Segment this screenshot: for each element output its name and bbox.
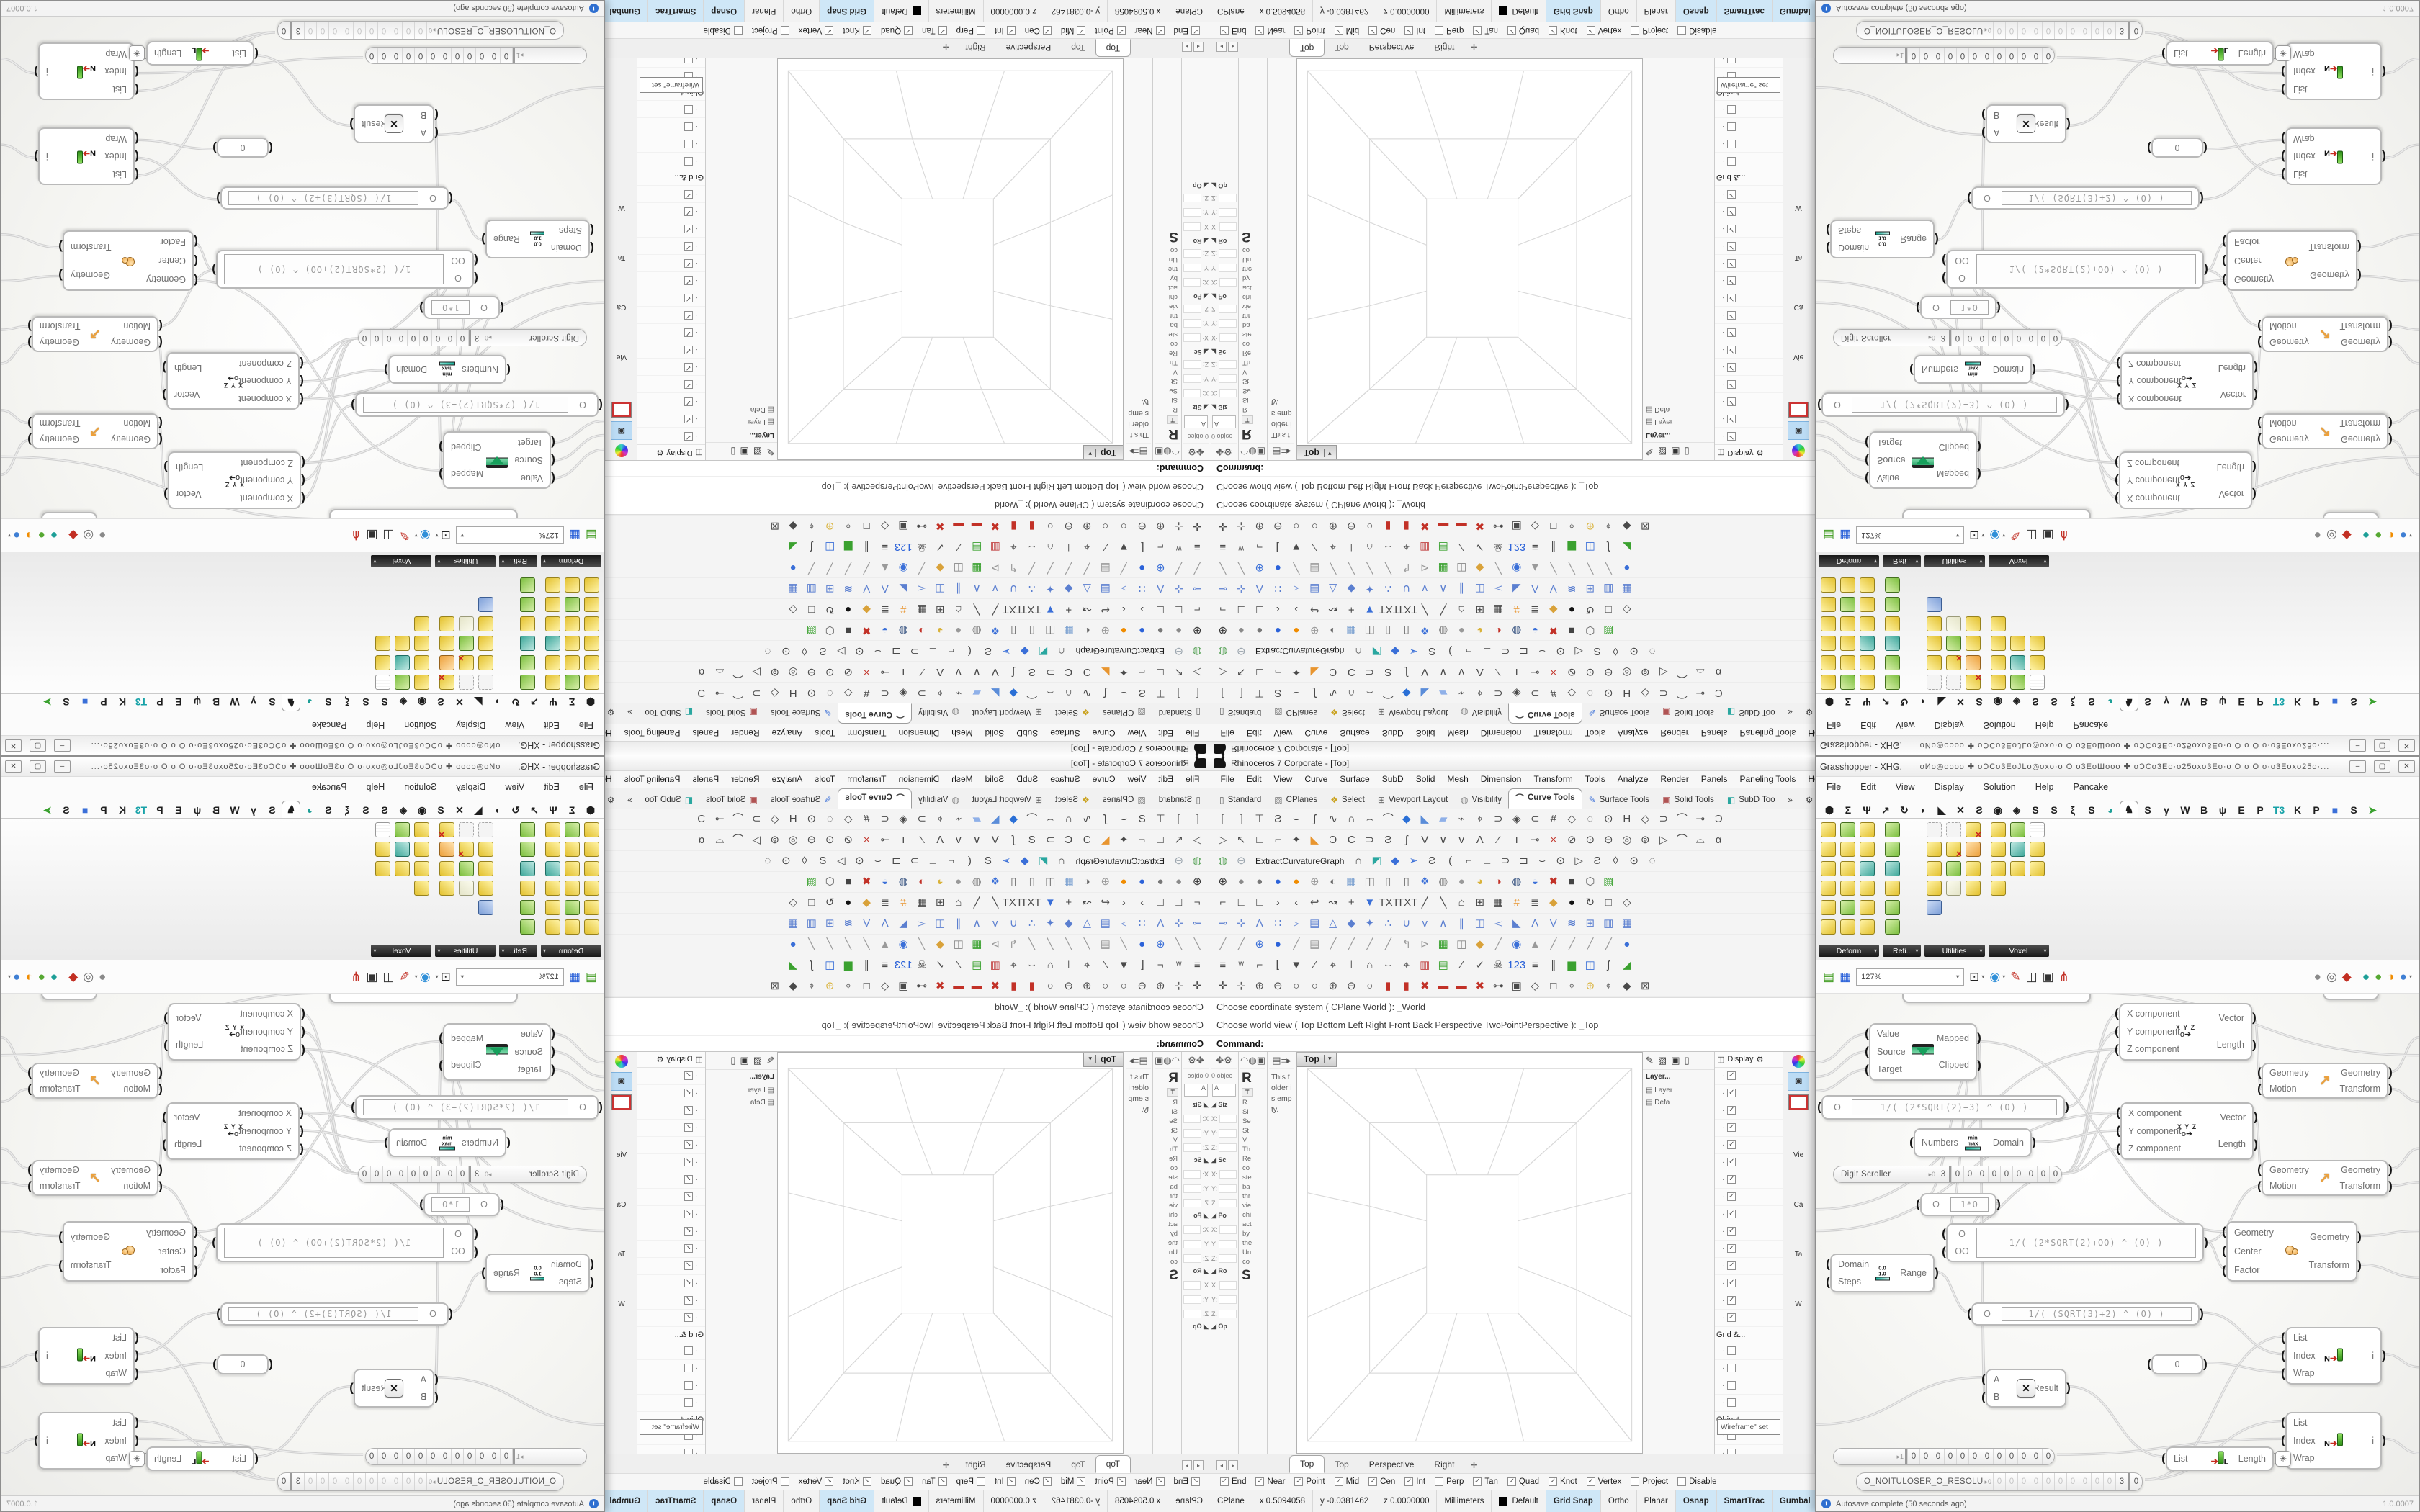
osnap-mid[interactable]: ✓Mid xyxy=(1061,1477,1086,1486)
category-tab-14[interactable]: S xyxy=(2082,694,2101,707)
toolbar-icon[interactable]: Ƨ xyxy=(1023,667,1041,678)
slider-digit[interactable]: 0 xyxy=(415,1473,427,1490)
tab-select[interactable]: ❖Select xyxy=(1324,792,1371,809)
layer-color-swatch[interactable] xyxy=(913,6,921,15)
toolbar-icon[interactable]: ⊂ xyxy=(876,688,895,698)
tab-surface-tools[interactable]: ✎Surface Tools xyxy=(1582,792,1657,809)
expression-4-component[interactable]: O1/( (SQRT(3)+2) ^ (O) )() xyxy=(220,1302,449,1326)
osnap-perp[interactable]: Perp xyxy=(1435,1477,1464,1486)
toolbar-icon[interactable]: ⊙ xyxy=(1600,814,1618,824)
slider-digit[interactable]: 0 xyxy=(1963,1166,1976,1182)
toolbar-icon[interactable]: ⊙ xyxy=(851,855,869,866)
osnap-point[interactable]: ✓Point xyxy=(1294,26,1325,35)
toolbar-icon[interactable]: ∟ xyxy=(1478,855,1497,866)
port-grip[interactable]: ( xyxy=(550,473,557,485)
toolbar-icon[interactable]: ▦ xyxy=(1059,625,1078,636)
slider-digit[interactable]: 0 xyxy=(1907,1449,1919,1464)
display-mode-icon[interactable]: ● xyxy=(13,529,20,541)
toolbar-icon[interactable]: ⊸ xyxy=(1691,814,1710,824)
port-grip[interactable]: ( xyxy=(2256,434,2263,446)
checkbox-checked[interactable]: ✓ xyxy=(1007,26,1016,35)
toolbar-icon[interactable]: ∟ xyxy=(924,855,943,866)
sketch-icon[interactable]: ✎ xyxy=(400,529,410,541)
toolbar-icon[interactable]: TXT xyxy=(1023,897,1041,908)
scale-component[interactable]: GeometryCenterFactorGeometryTransform(((… xyxy=(2226,230,2357,291)
port-grip[interactable]: ) xyxy=(2387,1163,2394,1175)
axis-input[interactable] xyxy=(1183,194,1201,202)
toolbar-icon[interactable]: Ɔ xyxy=(1710,814,1729,824)
port-grip[interactable]: ) xyxy=(418,302,425,314)
toolbar-icon[interactable]: ∷ xyxy=(1269,918,1288,929)
category-tab-27[interactable]: ■ xyxy=(2326,805,2344,818)
toolbar-icon[interactable]: ⊖ xyxy=(1343,981,1361,991)
toolbar-icon[interactable]: ◆ xyxy=(1471,562,1489,573)
slider-digit[interactable]: 0 xyxy=(1993,1473,2005,1490)
checkbox-checked[interactable]: ✓ xyxy=(684,259,693,268)
toolbar-icon[interactable]: ╱ xyxy=(1544,562,1563,573)
category-tab-2[interactable]: Ψ xyxy=(544,694,563,707)
section-sc[interactable]: ◢ Sc xyxy=(1211,1156,1237,1164)
toolbar-icon[interactable]: ◌ xyxy=(1643,855,1662,866)
toolbar-icon[interactable]: ▤ xyxy=(1096,918,1115,929)
component-icon[interactable] xyxy=(565,597,580,612)
component-icon[interactable] xyxy=(1885,900,1900,915)
toolbar-icon[interactable]: ↻ xyxy=(1581,897,1600,908)
toolbar-icon[interactable]: ◆ xyxy=(1343,918,1361,929)
osnap-cen[interactable]: ✓Cen xyxy=(1368,1477,1395,1486)
toolbar-icon[interactable]: ≡ xyxy=(1188,960,1207,971)
port-grip[interactable]: ( xyxy=(2115,394,2122,406)
port-grip[interactable]: ) xyxy=(57,1259,64,1272)
toolbar-icon[interactable]: ⌐ xyxy=(1133,834,1152,845)
grasshopper-titlebar[interactable]: Grasshopper - XHG. oИo◎oooo ✚ oƆCo3EoJLo… xyxy=(1816,735,2419,755)
slider-digit[interactable]: 0 xyxy=(1963,330,1976,346)
tab-surface-tools[interactable]: ✎Surface Tools xyxy=(764,703,838,720)
toolbar-icon[interactable]: ı xyxy=(1507,667,1526,678)
port-grip[interactable]: ) xyxy=(2030,364,2038,376)
osnap-mid[interactable]: ✓Mid xyxy=(1335,1477,1360,1486)
toolbar-icon[interactable]: ⊳ xyxy=(986,939,1005,950)
expression-text[interactable]: 1*O xyxy=(1950,1197,1989,1212)
category-tab-21[interactable]: ψ xyxy=(188,805,207,818)
category-tab-14[interactable]: S xyxy=(319,805,338,818)
toolbar-icon[interactable]: ╱ xyxy=(1115,562,1134,573)
component-icon[interactable] xyxy=(1860,675,1875,690)
category-tab-17[interactable]: S xyxy=(263,694,282,707)
axis-input[interactable] xyxy=(1183,319,1201,328)
toolbar-icon[interactable]: ● xyxy=(949,625,968,636)
port-grip[interactable]: ( xyxy=(133,169,140,181)
toolbar-icon[interactable]: ⁄ xyxy=(1489,834,1508,845)
toolbar-icon[interactable]: ↝ xyxy=(1324,604,1343,615)
toolbar-icon[interactable]: ▬ xyxy=(968,981,987,991)
checkbox-checked[interactable]: ✓ xyxy=(1549,26,1557,35)
menu-surface[interactable]: Surface xyxy=(1334,728,1376,738)
component-icon[interactable] xyxy=(395,636,410,651)
minimize-button[interactable]: – xyxy=(54,760,71,773)
expression-text[interactable]: 1*O xyxy=(1950,300,1989,315)
component-icon[interactable] xyxy=(1860,900,1875,915)
toolbar-icon[interactable]: ↝ xyxy=(1078,897,1097,908)
toolbar-icon[interactable]: ⊥ xyxy=(1343,960,1361,971)
help-tab[interactable]: T xyxy=(1168,1088,1179,1097)
component-icon[interactable] xyxy=(1840,822,1855,837)
component-icon[interactable] xyxy=(545,616,560,631)
toolbar-icon[interactable]: ⌁ xyxy=(949,688,968,698)
component-icon[interactable] xyxy=(1927,616,1942,631)
component-icon[interactable] xyxy=(414,655,429,670)
toolbar-icon[interactable]: ▬ xyxy=(968,521,987,531)
axis-input[interactable] xyxy=(1219,208,1237,217)
checkbox-checked[interactable]: ✓ xyxy=(684,1296,693,1305)
toolbar-icon[interactable]: ◈ xyxy=(895,688,913,698)
checkbox-checked[interactable]: ✓ xyxy=(863,1477,871,1486)
viewport-top[interactable]: Top ▾ xyxy=(1296,1052,1643,1454)
toolbar-icon[interactable]: ∨ xyxy=(968,667,987,678)
status-grid-snap[interactable]: Grid Snap xyxy=(819,1490,874,1512)
toolbar-icon[interactable]: ⊹ xyxy=(1170,583,1188,594)
toolbar-icon[interactable]: Ɔ xyxy=(692,688,711,698)
axis-input[interactable] xyxy=(1183,1199,1201,1207)
category-tab-11[interactable]: S xyxy=(2026,694,2045,707)
component-icon[interactable] xyxy=(545,861,560,876)
toolbar-icon[interactable]: ▧ xyxy=(802,625,821,636)
axes-widget-icon[interactable]: ⋔ xyxy=(2059,529,2069,541)
expression-1-component[interactable]: O1/( (2*SQRT(2)+3) ^ (O) )() xyxy=(355,392,599,417)
checkbox-checked[interactable]: ✓ xyxy=(1727,346,1736,354)
checkbox-checked[interactable]: ✓ xyxy=(1077,1477,1085,1486)
port-grip[interactable]: ( xyxy=(192,1245,200,1257)
slider-digit[interactable]: 0 xyxy=(390,48,403,63)
port-grip[interactable]: ( xyxy=(2280,1367,2287,1380)
maximize-button[interactable]: ▢ xyxy=(30,739,46,752)
category-tab-0[interactable]: ⬢ xyxy=(1820,694,1839,707)
toolbar-icon[interactable]: H xyxy=(1618,688,1636,698)
checkbox-unchecked[interactable] xyxy=(1631,26,1639,35)
port-grip[interactable]: ) xyxy=(437,441,444,453)
panel-zero-component[interactable]: 0() xyxy=(217,138,269,158)
vector-xyz-1-component[interactable]: X componentY componentZ componentVectorL… xyxy=(168,451,301,509)
toolbar-icon[interactable]: ʷ xyxy=(1170,541,1188,552)
port-grip[interactable]: ( xyxy=(2256,1179,2263,1192)
toolbar-icon[interactable]: ◎ xyxy=(1618,834,1636,845)
toolbar-icon[interactable]: ʃ xyxy=(802,541,821,552)
component-icon[interactable] xyxy=(584,919,599,935)
toolbar-icon[interactable]: ◆ xyxy=(1386,855,1404,866)
toolbar-icon[interactable]: ◫ xyxy=(821,960,840,971)
component-icon[interactable] xyxy=(414,616,429,631)
toolbar-icon[interactable]: ╱ xyxy=(858,939,877,950)
scale-component[interactable]: GeometryCenterFactorGeometryTransform(((… xyxy=(63,230,194,291)
group-icon[interactable]: ◫ xyxy=(2026,971,2038,983)
component-icon[interactable] xyxy=(1946,675,1961,690)
toolbar-icon[interactable]: ◉ xyxy=(1507,562,1526,573)
new-viewport-button[interactable]: ✛ xyxy=(937,39,956,55)
toolbar-icon[interactable]: ⊙ xyxy=(1581,667,1600,678)
category-tab-19[interactable]: W xyxy=(225,694,244,707)
component-icon[interactable] xyxy=(565,822,580,837)
toolbar-icon[interactable]: ✦ xyxy=(1361,918,1379,929)
slider-digit[interactable]: 0 xyxy=(2005,48,2017,63)
osnap-vertex[interactable]: ✓Vertex xyxy=(1587,26,1622,35)
axis-input[interactable] xyxy=(1219,1199,1237,1207)
toolbar-icon[interactable]: ⌒ xyxy=(1379,688,1398,698)
port-grip[interactable]: ( xyxy=(2146,142,2153,154)
toolbar-icon[interactable]: ∴ xyxy=(1379,583,1398,594)
checkbox-checked[interactable]: ✓ xyxy=(1727,1089,1736,1097)
toolbar-icon[interactable]: ╲ xyxy=(1434,897,1453,908)
category-tab-20[interactable]: B xyxy=(2195,694,2213,707)
display-mode-field[interactable]: Wireframe" set xyxy=(1717,77,1780,93)
toolbar-icon[interactable]: ◆ xyxy=(1397,814,1416,824)
slider-digit[interactable]: 0 xyxy=(329,22,341,39)
toolbar-icon[interactable]: ◆ xyxy=(1618,981,1636,991)
port-grip[interactable]: ( xyxy=(472,1245,480,1257)
ribbon-group-caption[interactable]: Refi..▾ xyxy=(1883,555,1921,567)
toolbar-icon[interactable]: ∟ xyxy=(1250,604,1269,615)
toolbar-icon[interactable]: ⊃ xyxy=(1361,834,1379,845)
toolbar-icon[interactable]: TXT xyxy=(1379,897,1398,908)
category-tab-17[interactable]: S xyxy=(263,805,282,818)
toolbar-icon[interactable]: # xyxy=(1507,897,1526,908)
toolbar-icon[interactable]: ◕ xyxy=(931,876,950,887)
component-icon[interactable] xyxy=(1840,636,1855,651)
category-tab-15[interactable]: ◕ xyxy=(2101,805,2120,818)
component-icon[interactable] xyxy=(1885,919,1900,935)
toolbar-icon[interactable]: ⌊ xyxy=(1269,960,1288,971)
category-tab-25[interactable]: K xyxy=(2288,694,2307,707)
category-tab-5[interactable]: ◗ xyxy=(488,805,506,818)
checkbox-checked[interactable]: ✓ xyxy=(684,294,693,302)
toolbar-icon[interactable]: ◒ xyxy=(1526,625,1545,636)
tab-cplanes[interactable]: ▨CPlanes xyxy=(1096,703,1152,720)
checkbox-checked[interactable]: ✓ xyxy=(904,26,913,35)
port-grip[interactable]: ( xyxy=(253,1452,260,1464)
toolbar-icon[interactable]: ╱ xyxy=(1232,562,1251,573)
category-tab-1[interactable]: Σ xyxy=(563,694,581,707)
toolbar-icon[interactable]: ▆ xyxy=(1563,960,1582,971)
tab-select[interactable]: ❖Select xyxy=(1324,703,1371,720)
slider-digit[interactable]: 0 xyxy=(444,1166,457,1182)
port-grip[interactable]: ) xyxy=(358,332,359,344)
slider-digit[interactable]: 0 xyxy=(1981,1449,1993,1464)
slider-digit[interactable]: 0 xyxy=(452,48,464,63)
toolbar-icon[interactable]: ∪ xyxy=(1005,583,1023,594)
category-tab-1[interactable]: Σ xyxy=(1839,805,1857,818)
port-grip[interactable]: ) xyxy=(349,1101,357,1113)
toolbar-icon[interactable]: # xyxy=(895,604,913,615)
category-tab-9[interactable]: ◉ xyxy=(413,694,431,707)
checkbox-checked[interactable]: ✓ xyxy=(1473,26,1482,35)
component-icon[interactable] xyxy=(1885,616,1900,631)
chevron-down-icon[interactable]: ▾ xyxy=(1088,449,1096,457)
expression-text[interactable]: 1/( (2*SQRT(2)+OO) ^ (O) ) xyxy=(224,254,444,284)
toolbar-icon[interactable]: ▷ xyxy=(1214,834,1232,845)
port-grip[interactable]: ( xyxy=(2280,132,2287,145)
preview-shaded-icon[interactable]: ◆ xyxy=(2342,971,2352,983)
port-grip[interactable]: ( xyxy=(1863,1063,1870,1076)
port-grip[interactable]: ) xyxy=(162,1012,169,1024)
gh-menu-display[interactable]: Display xyxy=(1935,720,1964,730)
slider-digit[interactable]: 0 xyxy=(2054,1473,2066,1490)
slider-digit[interactable]: 0 xyxy=(2103,1473,2115,1490)
partial-top-left-component[interactable] xyxy=(1902,509,2091,518)
toolbar-icon[interactable]: ● xyxy=(1133,625,1152,636)
toolbar-icon[interactable]: ʃ xyxy=(1005,834,1023,845)
checkbox-checked[interactable]: ✓ xyxy=(684,1279,693,1287)
move-1-component[interactable]: GeometryMotionGeometryTransform↗(()) xyxy=(2262,1063,2388,1099)
toolbar-icon[interactable]: ⌒ xyxy=(1023,814,1041,824)
toolbar-icon[interactable]: ∷ xyxy=(1269,583,1288,594)
menu-subd[interactable]: SubD xyxy=(1376,728,1410,738)
toolbar-icon[interactable]: ○ xyxy=(1115,981,1134,991)
port-grip[interactable]: ( xyxy=(2113,474,2120,487)
port-grip[interactable]: ( xyxy=(157,1066,164,1078)
toolbar-icon[interactable]: ∪ xyxy=(1005,918,1023,929)
maximize-button[interactable]: ▢ xyxy=(2374,739,2390,752)
checkbox-checked[interactable]: ✓ xyxy=(1727,1106,1736,1115)
osnap-project[interactable]: Project xyxy=(752,1477,789,1486)
checkbox-checked[interactable]: ✓ xyxy=(1727,432,1736,441)
port-grip[interactable]: ) xyxy=(365,50,366,62)
component-icon[interactable] xyxy=(1927,655,1942,670)
category-tab-28[interactable]: S xyxy=(2344,694,2363,707)
toolbar-icon[interactable]: ✦ xyxy=(1361,583,1379,594)
toolbar-icon[interactable]: ❖ xyxy=(1416,625,1435,636)
folder-icon[interactable]: ▸ xyxy=(1129,446,1134,457)
toolbar-icon[interactable]: ⌊ xyxy=(1133,541,1152,552)
section-sc[interactable]: ◢ Sc xyxy=(1183,1156,1209,1164)
component-icon[interactable] xyxy=(478,655,493,670)
preview-mesh-icon[interactable]: ● xyxy=(38,971,45,983)
port-grip[interactable]: ) xyxy=(2356,1230,2363,1243)
checkbox-unchecked[interactable] xyxy=(684,140,693,148)
port-grip[interactable]: ) xyxy=(1976,468,1983,480)
component-icon[interactable] xyxy=(520,842,535,857)
toolbar-icon[interactable]: ⊕ xyxy=(1078,521,1097,531)
port-grip[interactable]: ( xyxy=(433,1372,440,1385)
toolbar-icon[interactable]: ╱ xyxy=(1214,939,1232,950)
checkbox-checked[interactable]: ✓ xyxy=(684,346,693,354)
resolution-slider-component[interactable]: O_NOITULOSER_O_RESOLUTION_O▸000000000003… xyxy=(1856,21,2143,40)
camera-icon[interactable]: ◙ xyxy=(611,421,632,440)
port-grip[interactable]: ( xyxy=(157,1179,164,1192)
move-2-component[interactable]: GeometryMotionGeometryTransform↗(()) xyxy=(2262,316,2388,352)
port-grip[interactable]: ( xyxy=(597,1101,604,1113)
ribbon-group-caption[interactable]: Refi..▾ xyxy=(499,555,537,567)
partial-top-right-component[interactable] xyxy=(41,994,97,1000)
port-grip[interactable]: ( xyxy=(192,274,200,287)
checkbox-checked[interactable]: ✓ xyxy=(904,1477,913,1486)
menu-view[interactable]: View xyxy=(1268,774,1299,784)
component-icon[interactable] xyxy=(395,842,410,857)
menu-subd[interactable]: SubD xyxy=(1010,774,1044,784)
toolbar-icon[interactable]: ⊸ xyxy=(711,688,730,698)
toolbar-icon[interactable]: ⊞ xyxy=(1471,897,1489,908)
toolbar-icon[interactable]: ▤ xyxy=(1306,583,1325,594)
expression-button[interactable]: ✳ xyxy=(2275,1451,2291,1467)
toolbar-icon[interactable]: ▮ xyxy=(1005,981,1023,991)
menu-mesh[interactable]: Mesh xyxy=(946,728,979,738)
toolbar-icon[interactable]: ∿ xyxy=(1078,814,1097,824)
component-icon[interactable] xyxy=(1946,881,1961,896)
category-tab-10[interactable]: ◈ xyxy=(2007,805,2026,818)
expression-3-component[interactable]: OOO1/( (2*SQRT(2)+OO) ^ (O) )(() xyxy=(216,250,474,289)
slider-digit[interactable]: 0 xyxy=(444,330,457,346)
toolbar-icon[interactable]: ≋ xyxy=(839,583,858,594)
toolbar-icon[interactable]: ⊃ xyxy=(1489,814,1508,824)
toolbar-icon[interactable]: Λ xyxy=(876,918,895,929)
port-grip[interactable]: ( xyxy=(1940,1227,1948,1239)
port-grip[interactable]: ( xyxy=(447,192,454,204)
toolbar-icon[interactable]: ↖ xyxy=(1232,667,1251,678)
toolbar-icon[interactable]: ◑ xyxy=(1489,625,1508,636)
selected-only-icon[interactable]: ● xyxy=(50,529,58,541)
category-tab-19[interactable]: W xyxy=(2176,805,2195,818)
toolbar-icon[interactable]: C xyxy=(1343,834,1361,845)
toolbar-icon[interactable]: ╱ xyxy=(1078,562,1097,573)
category-tab-1[interactable]: Σ xyxy=(1839,694,1857,707)
tab-select[interactable]: ❖Select xyxy=(1049,703,1096,720)
menu-solid[interactable]: Solid xyxy=(979,774,1010,784)
checkbox-checked[interactable]: ✓ xyxy=(684,1313,693,1322)
layer-row[interactable]: ▤ Layer xyxy=(706,1084,777,1097)
toolbar-icon[interactable]: ⌖ xyxy=(1078,960,1097,971)
toolbar-icon[interactable]: Λ xyxy=(931,667,950,678)
viewport-tab-top-0[interactable]: Top xyxy=(1095,39,1131,57)
port-grip[interactable]: ( xyxy=(157,1082,164,1094)
port-grip[interactable]: ( xyxy=(1824,1275,1832,1287)
toolbar-icon[interactable]: ◇ xyxy=(1563,814,1582,824)
expression-4-component[interactable]: O1/( (SQRT(3)+2) ^ (O) )() xyxy=(1971,186,2200,210)
toolbar-icon[interactable]: ▯ xyxy=(1023,625,1041,636)
toolbar-icon[interactable]: ⌣ xyxy=(1023,960,1041,971)
toolbar-icon[interactable]: # xyxy=(895,897,913,908)
digit-scroller-1-component[interactable]: Digit Scroller▸03000000000) xyxy=(1833,1166,2062,1183)
component-icon[interactable] xyxy=(584,900,599,915)
toolbar-icon[interactable]: ▯ xyxy=(1379,876,1398,887)
axis-input[interactable] xyxy=(1183,374,1201,383)
toolbar-icon[interactable]: ▯ xyxy=(1023,876,1041,887)
maximize-button[interactable]: ▢ xyxy=(30,760,46,773)
preview-eye-icon[interactable]: ◉ xyxy=(420,971,431,983)
toolbar-icon[interactable]: ⊞ xyxy=(931,604,950,615)
toolbar-icon[interactable]: V xyxy=(1416,667,1435,678)
toolbar-icon[interactable]: ● xyxy=(1170,625,1188,636)
port-grip[interactable]: ) xyxy=(26,337,33,349)
toolbar-icon[interactable]: ▤ xyxy=(968,541,987,552)
slider-digit[interactable]: 0 xyxy=(2130,22,2142,39)
checkbox-checked[interactable]: ✓ xyxy=(684,363,693,372)
toolbar-icon[interactable]: ⌖ xyxy=(839,981,858,991)
port-grip[interactable]: ( xyxy=(133,84,140,96)
axis-input[interactable] xyxy=(1183,1310,1201,1318)
toolbar-icon[interactable]: ⊚ xyxy=(766,834,784,845)
toolbar-icon[interactable]: ⊳ xyxy=(986,562,1005,573)
menu-analyze[interactable]: Analyze xyxy=(1611,728,1654,738)
slider-digit[interactable]: 0 xyxy=(2017,1449,2030,1464)
slider-digit[interactable]: 0 xyxy=(408,330,420,346)
panel-zero-component[interactable]: 0() xyxy=(217,1354,269,1374)
slider-digit[interactable]: 0 xyxy=(1988,330,2000,346)
component-icon[interactable] xyxy=(520,822,535,837)
toolbar-icon[interactable]: ● xyxy=(1453,876,1471,887)
slider-digit[interactable]: 0 xyxy=(420,330,432,346)
toolbar-icon[interactable]: ╱ xyxy=(986,897,1005,908)
menu-file[interactable]: File xyxy=(1180,774,1206,784)
port-grip[interactable]: ( xyxy=(550,1027,557,1039)
list-item-1-component[interactable]: ListIndexWrapiN➔((() xyxy=(2285,127,2382,185)
